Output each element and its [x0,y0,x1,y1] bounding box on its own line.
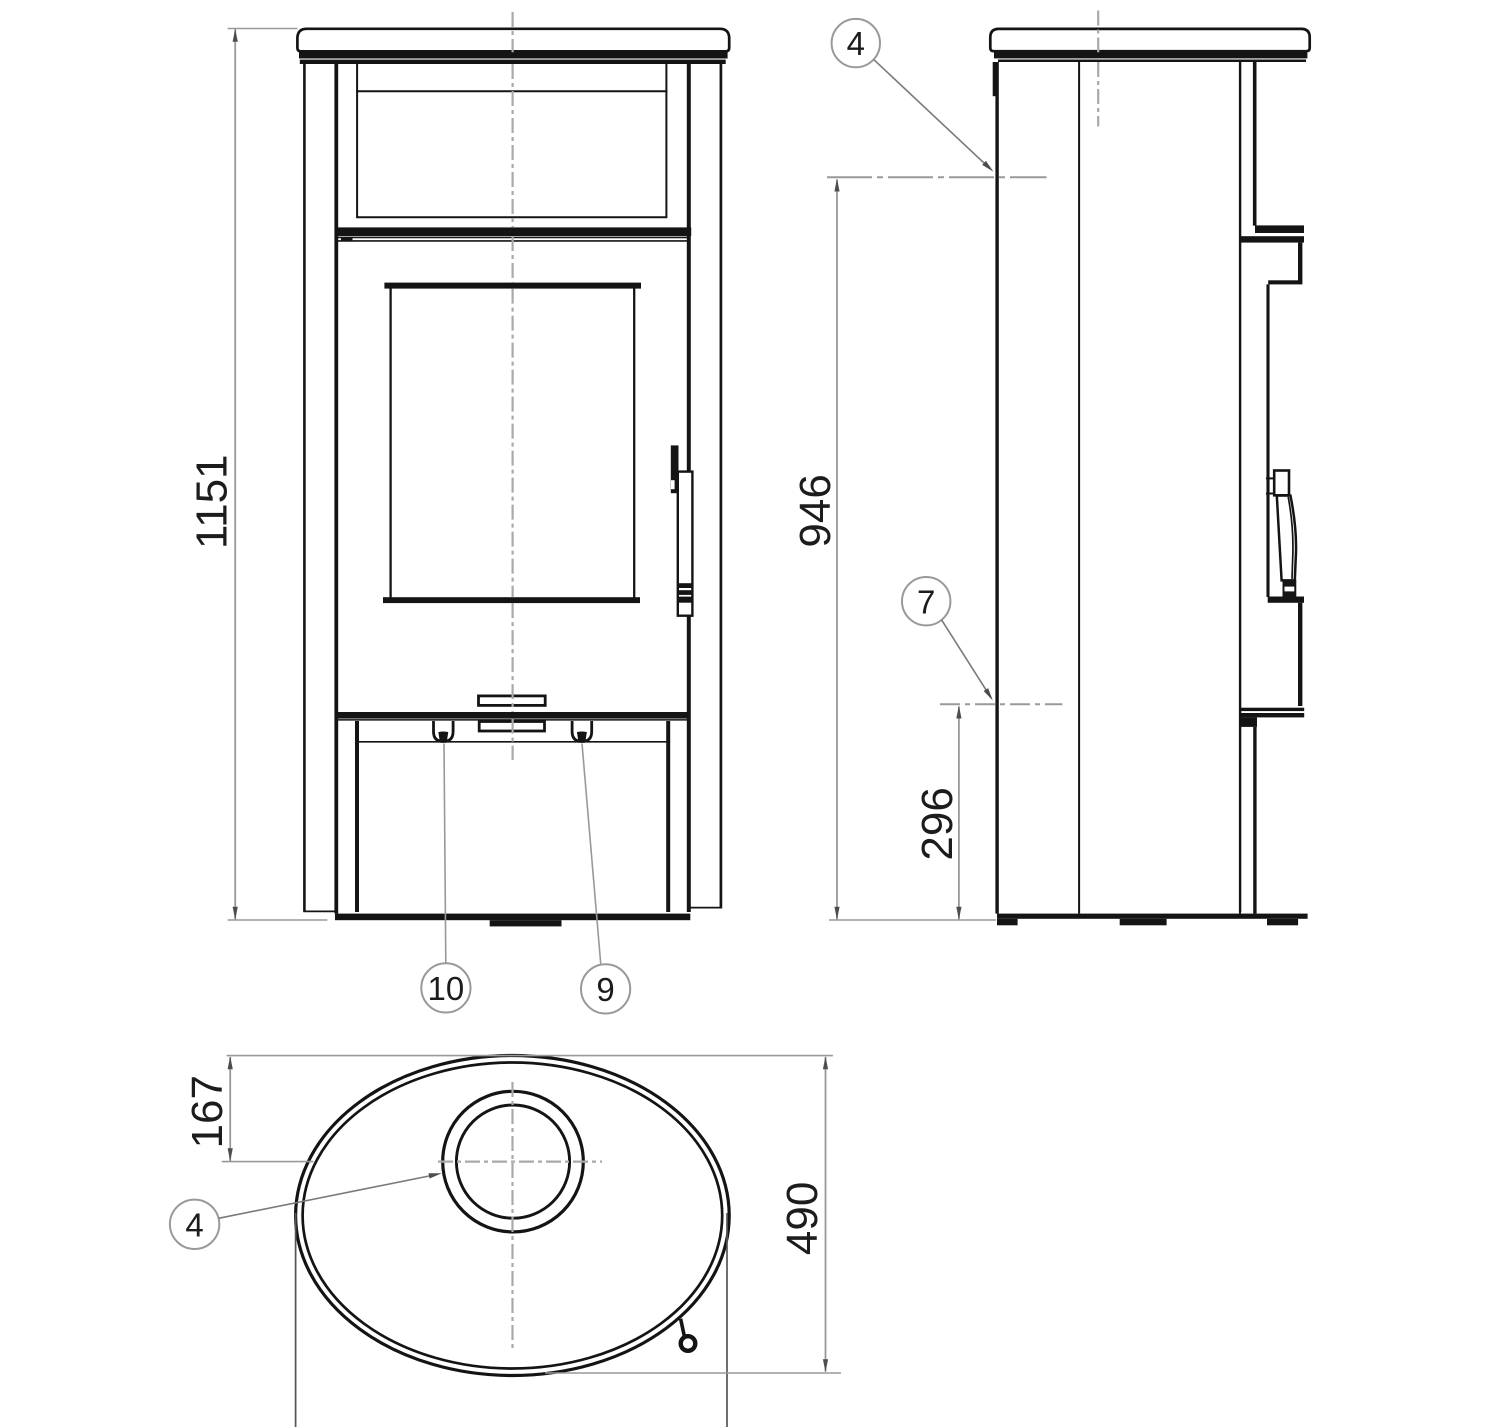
svg-text:946: 946 [791,474,840,547]
svg-text:296: 296 [913,787,962,860]
svg-text:10: 10 [428,970,465,1007]
svg-text:4: 4 [847,25,865,62]
svg-text:1151: 1151 [187,454,236,549]
svg-text:167: 167 [183,1075,232,1148]
svg-text:7: 7 [917,583,935,620]
svg-text:4: 4 [185,1206,203,1243]
svg-text:9: 9 [596,971,614,1008]
svg-text:490: 490 [778,1182,827,1255]
